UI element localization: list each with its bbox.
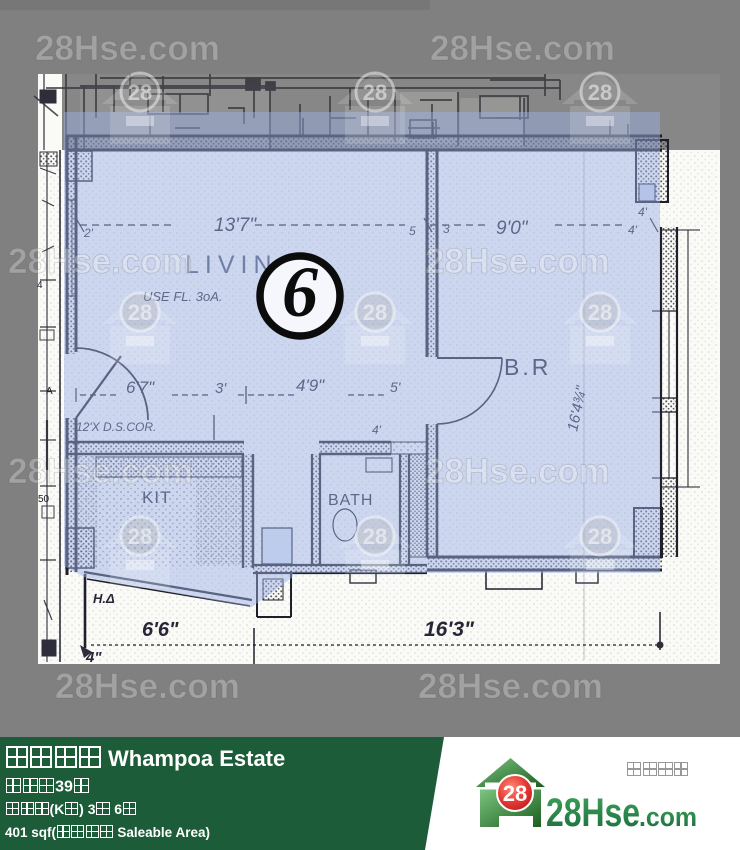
svg-text:28: 28 [503, 781, 527, 806]
svg-text:28Hse: 28Hse [546, 791, 640, 835]
svg-text:.com: .com [639, 802, 697, 832]
